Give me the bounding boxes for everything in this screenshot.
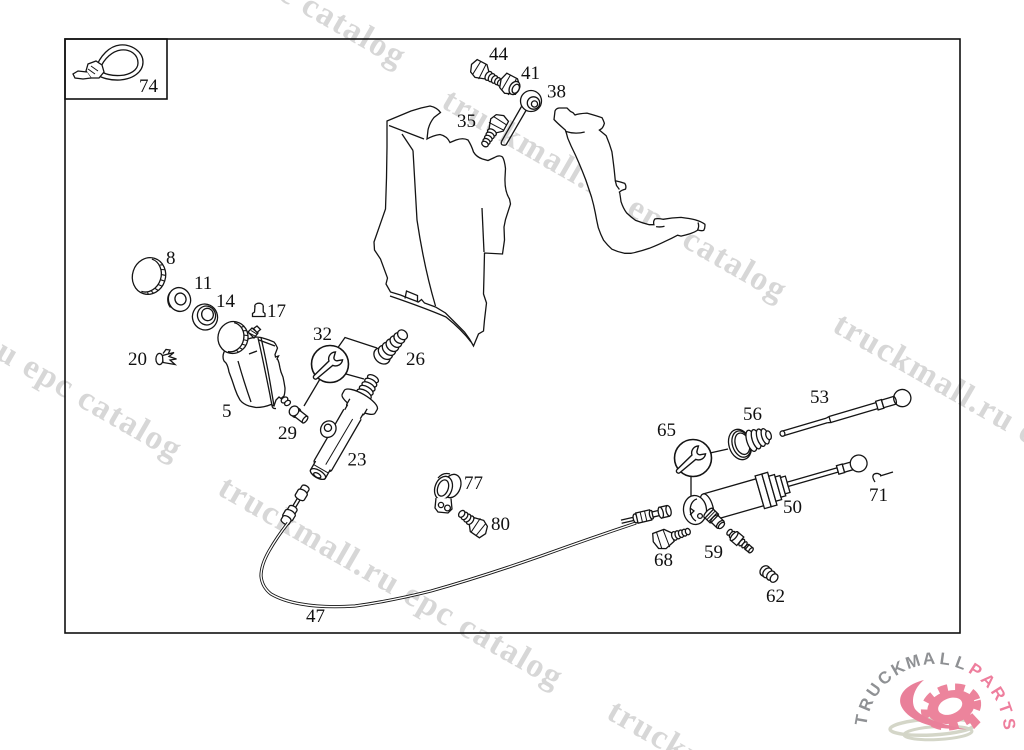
svg-text:11: 11 xyxy=(194,273,212,294)
svg-text:17: 17 xyxy=(267,301,286,322)
svg-text:29: 29 xyxy=(278,423,297,444)
svg-text:T: T xyxy=(851,713,872,727)
svg-text:80: 80 xyxy=(491,514,510,535)
svg-text:L: L xyxy=(953,652,969,673)
svg-text:44: 44 xyxy=(489,44,509,65)
svg-text:68: 68 xyxy=(654,550,673,571)
svg-text:8: 8 xyxy=(166,248,176,269)
svg-text:47: 47 xyxy=(306,606,325,627)
svg-text:20: 20 xyxy=(128,349,147,370)
svg-text:74: 74 xyxy=(139,76,159,97)
svg-text:71: 71 xyxy=(869,485,888,506)
svg-text:77: 77 xyxy=(464,473,483,494)
svg-text:S: S xyxy=(999,717,1019,731)
svg-text:65: 65 xyxy=(657,420,676,441)
svg-text:53: 53 xyxy=(810,387,829,408)
svg-text:14: 14 xyxy=(216,291,236,312)
svg-text:35: 35 xyxy=(457,111,476,132)
svg-text:truckmall.ru epc catalog: truckmall.ru epc catalog xyxy=(55,0,413,75)
svg-text:38: 38 xyxy=(547,82,566,103)
svg-text:26: 26 xyxy=(406,349,425,370)
svg-text:truckmall.ru epc catalog: truckmall.ru epc catalog xyxy=(212,468,570,696)
svg-text:50: 50 xyxy=(783,497,802,518)
svg-text:32: 32 xyxy=(313,324,332,345)
svg-text:A: A xyxy=(922,649,936,669)
svg-text:truckmall.ru epc catalog: truckmall.ru epc catalog xyxy=(827,305,1024,533)
svg-text:59: 59 xyxy=(704,542,723,563)
svg-text:M: M xyxy=(903,651,922,673)
svg-text:L: L xyxy=(939,649,952,669)
svg-text:62: 62 xyxy=(766,586,785,607)
svg-text:56: 56 xyxy=(743,404,762,425)
svg-text:5: 5 xyxy=(222,401,232,422)
svg-text:41: 41 xyxy=(521,63,540,84)
svg-text:23: 23 xyxy=(348,450,367,471)
svg-text:T: T xyxy=(994,700,1016,717)
